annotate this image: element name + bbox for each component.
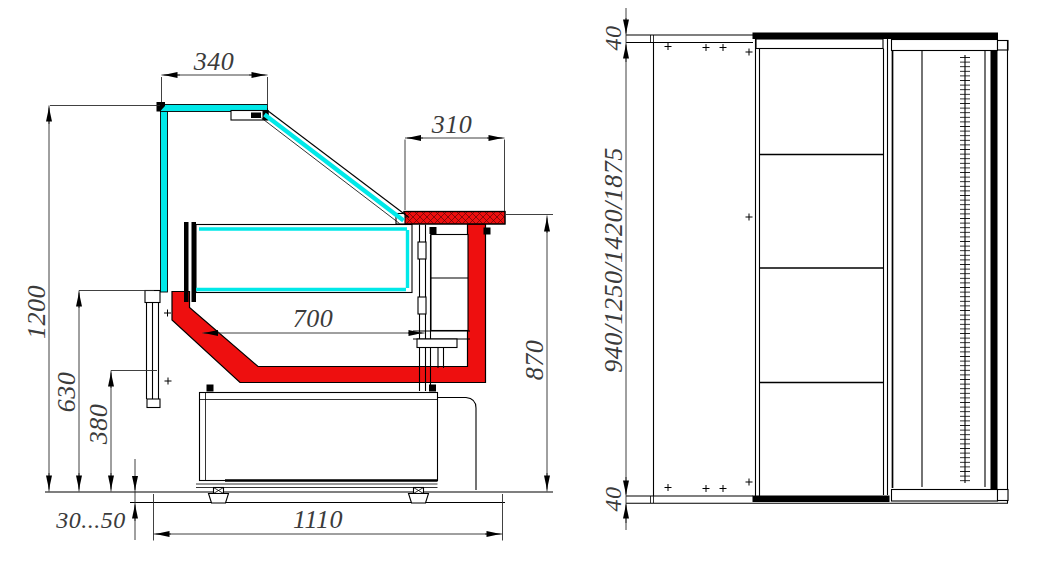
dim-700: 700 bbox=[203, 304, 425, 333]
elevation-view: 40 940/1250/1420/1875 40 bbox=[599, 8, 1008, 530]
dim-case-lengths: 940/1250/1420/1875 bbox=[599, 147, 628, 373]
support-bracket bbox=[417, 339, 457, 348]
dim-1110: 1110 bbox=[154, 494, 503, 541]
curtain-top-frame bbox=[892, 40, 998, 51]
dim-label-630: 630 bbox=[52, 372, 81, 413]
dim-label-310: 310 bbox=[431, 110, 473, 139]
dim-label-30-50: 30...50 bbox=[55, 507, 126, 533]
dim-630: 630 bbox=[52, 291, 154, 492]
plus-mark bbox=[746, 214, 753, 221]
mount-square bbox=[484, 228, 491, 235]
dim-label-1110: 1110 bbox=[293, 505, 343, 534]
dim-310: 310 bbox=[405, 110, 505, 211]
glass-top-frame bbox=[756, 39, 883, 49]
plus-mark bbox=[165, 378, 172, 385]
plus-mark bbox=[720, 44, 727, 51]
evaporator-box bbox=[431, 235, 468, 331]
lamp-detail bbox=[251, 113, 261, 119]
bracket-square bbox=[207, 385, 214, 392]
dim-label-40-bottom: 40 bbox=[600, 487, 626, 512]
section-view: 340 310 1200 630 bbox=[22, 47, 553, 541]
corner-block bbox=[998, 490, 1009, 501]
display-deck bbox=[196, 225, 412, 293]
deck-left-cap bbox=[184, 222, 189, 302]
slanted-glass-edge bbox=[262, 118, 400, 224]
wall-foot-bracket bbox=[147, 399, 160, 408]
dim-label-870: 870 bbox=[520, 340, 549, 381]
curtain-black-band bbox=[991, 51, 998, 490]
dim-40-bottom: 40 bbox=[600, 487, 626, 512]
adjustable-foot bbox=[209, 488, 229, 504]
dim-label-340: 340 bbox=[193, 47, 235, 76]
rear-panel-bump bbox=[418, 297, 426, 314]
corner-block bbox=[998, 41, 1009, 51]
dim-30-50: 30...50 bbox=[55, 459, 135, 540]
dim-label-40-top: 40 bbox=[600, 26, 626, 51]
curtain-bottom-frame bbox=[892, 490, 998, 502]
technical-drawing-canvas: 340 310 1200 630 bbox=[0, 0, 1042, 569]
base-cabinet bbox=[200, 393, 438, 481]
mount-square bbox=[430, 227, 437, 234]
plus-mark bbox=[665, 484, 672, 491]
dim-870: 870 bbox=[506, 215, 553, 492]
plus-mark bbox=[746, 479, 753, 486]
rear-base-step bbox=[438, 398, 477, 491]
dim-label-380: 380 bbox=[84, 404, 113, 446]
slanted-glass-edge bbox=[268, 111, 410, 218]
plus-mark bbox=[665, 43, 672, 50]
slanted-glass bbox=[265, 115, 404, 221]
dim-label-700: 700 bbox=[293, 304, 334, 333]
glass-clip bbox=[145, 291, 160, 303]
dim-label-case-lengths: 940/1250/1420/1875 bbox=[599, 147, 628, 373]
display-case-drawing: 340 310 1200 630 bbox=[0, 0, 1042, 569]
plus-mark bbox=[703, 44, 710, 51]
front-glass-vertical bbox=[161, 106, 168, 292]
plus-mark bbox=[703, 485, 710, 492]
deck-left-cap bbox=[192, 222, 197, 302]
plus-mark bbox=[164, 310, 171, 317]
plus-mark bbox=[720, 485, 727, 492]
glass-bottom-bar bbox=[753, 496, 890, 503]
counter-top-hatch bbox=[404, 212, 505, 225]
rear-panel-bump bbox=[418, 242, 426, 259]
dim-340: 340 bbox=[162, 47, 268, 108]
plus-mark bbox=[746, 49, 753, 56]
top-bar bbox=[753, 33, 999, 40]
adjustable-foot bbox=[409, 488, 429, 504]
dim-label-1200: 1200 bbox=[22, 285, 51, 339]
